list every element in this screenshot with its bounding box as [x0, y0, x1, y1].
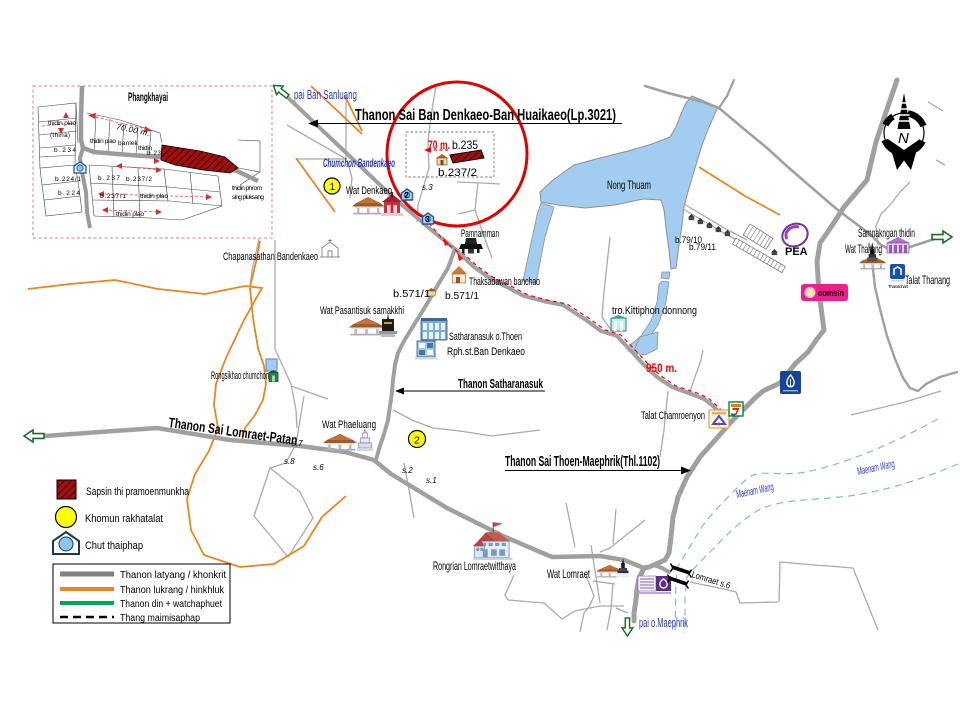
svg-text:b.237/1: b.237/1 [100, 193, 126, 200]
svg-text:Thanon Sai Ban Denkaeo-Ban Hua: Thanon Sai Ban Denkaeo-Ban Huaikaeo(Lp.3… [355, 107, 616, 124]
svg-text:70 m.: 70 m. [428, 138, 450, 152]
svg-text:b.571/1: b.571/1 [445, 291, 479, 302]
svg-text:Rongsikhao chumchon: Rongsikhao chumchon [211, 370, 269, 382]
svg-text:Chapanasathan Bandenkaeo: Chapanasathan Bandenkaeo [223, 251, 318, 263]
svg-text:2: 2 [414, 435, 420, 447]
svg-text:Samnakngan thidin: Samnakngan thidin [858, 226, 915, 240]
svg-text:N: N [898, 130, 909, 147]
svg-text:s.7: s.7 [292, 439, 303, 448]
svg-text:pai o.Maephrik: pai o.Maephrik [639, 615, 688, 630]
svg-text:pai Ban Sanluang: pai Ban Sanluang [294, 87, 357, 102]
svg-text:thidin phrom: thidin phrom [232, 185, 262, 192]
svg-text:Thanon Satharanasuk: Thanon Satharanasuk [458, 376, 543, 391]
svg-text:s.2: s.2 [402, 466, 413, 475]
svg-text:3: 3 [425, 215, 430, 224]
svg-text:s.3: s.3 [422, 183, 433, 192]
svg-text:Rph.st.Ban Denkaeo: Rph.st.Ban Denkaeo [447, 346, 525, 358]
svg-text:Satharanasuk o.Thoen: Satharanasuk o.Thoen [449, 331, 522, 343]
svg-text:b.235: b.235 [452, 138, 478, 152]
svg-text:Wat Phaeluang: Wat Phaeluang [322, 419, 376, 431]
svg-text:Thang maimisaphap: Thang maimisaphap [120, 613, 200, 624]
svg-text:Thanon Sai Thoen-Maephrik(Thl.: Thanon Sai Thoen-Maephrik(Thl.1102) [505, 453, 660, 470]
svg-text:s.8: s.8 [284, 457, 295, 466]
svg-text:Sapsin thi pramoenmunkha: Sapsin thi pramoenmunkha [86, 486, 190, 498]
svg-text:Wat Denkaeo: Wat Denkaeo [346, 185, 392, 197]
svg-text:thidin plao: thidin plao [116, 211, 144, 218]
svg-text:s.6: s.6 [313, 463, 324, 472]
svg-text:Nong Thuam: Nong Thuam [607, 178, 651, 192]
svg-text:Pamnamman: Pamnamman [461, 228, 499, 240]
svg-text:Talat Chamroenyon: Talat Chamroenyon [641, 410, 705, 422]
svg-text:thidin plao: thidin plao [140, 193, 168, 200]
svg-text:thidin plao: thidin plao [48, 120, 76, 127]
svg-text:sing pluksang: sing pluksang [232, 194, 264, 201]
svg-text:2: 2 [404, 191, 409, 200]
svg-text:1: 1 [330, 181, 336, 193]
svg-text:(thina): (thina) [50, 132, 70, 139]
svg-text:PEA: PEA [785, 246, 808, 258]
svg-text:Wat Thanang: Wat Thanang [845, 242, 882, 256]
svg-text:oomsin: oomsin [818, 288, 844, 298]
svg-text:Thanon din + watchaphuet: Thanon din + watchaphuet [120, 599, 222, 610]
svg-text:Khomun rakhatalat: Khomun rakhatalat [85, 513, 163, 525]
svg-text:Talat Thanang: Talat Thanang [905, 273, 950, 287]
svg-text:Phangkhayai: Phangkhayai [128, 90, 168, 104]
svg-text:thidin plao: thidin plao [90, 138, 116, 145]
svg-text:Wat Lomraet: Wat Lomraet [547, 567, 590, 581]
svg-text:b.237: b.237 [98, 175, 120, 182]
svg-text:b.234: b.234 [54, 147, 76, 154]
svg-text:950 m.: 950 m. [646, 361, 677, 375]
svg-text:b.237/2: b.237/2 [438, 167, 477, 179]
svg-text:s.1: s.1 [426, 476, 437, 485]
svg-text:b.224/1: b.224/1 [55, 176, 81, 183]
svg-text:Thanon lukrang / hinkhluk: Thanon lukrang / hinkhluk [120, 585, 225, 596]
svg-text:Chumchon Bandenkaeo: Chumchon Bandenkaeo [323, 156, 395, 170]
svg-text:Chut thaiphap: Chut thaiphap [85, 540, 143, 552]
svg-text:Thaksadawan banchao: Thaksadawan banchao [469, 276, 540, 288]
svg-text:Thanon latyang / khonkrit: Thanon latyang / khonkrit [120, 570, 226, 581]
svg-text:banlek: banlek [118, 140, 139, 147]
svg-text:b.23: b.23 [147, 150, 161, 157]
svg-text:b.571/1: b.571/1 [393, 289, 430, 300]
svg-text:b.237/2: b.237/2 [126, 176, 152, 183]
svg-text:b.79/11: b.79/11 [689, 242, 716, 252]
svg-text:Rongrian Lomraetwitthaya: Rongrian Lomraetwitthaya [433, 559, 516, 573]
svg-text:Wat Pasantisuk samakkhi: Wat Pasantisuk samakkhi [320, 305, 404, 317]
svg-text:b.224: b.224 [58, 190, 80, 197]
svg-text:tro.Kittiphon donnong: tro.Kittiphon donnong [612, 305, 697, 317]
